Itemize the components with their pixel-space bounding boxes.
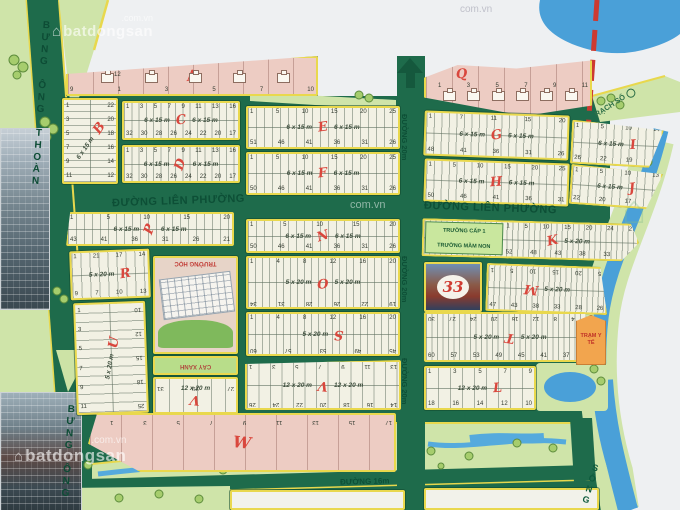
watermark-house-icon: ⌂ (622, 190, 646, 230)
block-D: 1357911131632302826242220176 x 15 mD6 x … (122, 145, 240, 183)
block-V: 1311975311416182022242612 x 20 mV12 x 20… (245, 360, 401, 410)
watermark-center: com.vn (350, 200, 385, 211)
road-label-16m: ĐƯỜNG 16m (340, 476, 390, 486)
watermark-top-center: com.vn (460, 5, 492, 15)
block-X2 (424, 488, 599, 510)
land-plot-map: 129135710A1357911Q13579112220181614126 x… (0, 0, 680, 510)
block-O: 1481216201922262831345 x 20 mO5 x 20 m (246, 256, 400, 309)
block-R: 12117149710135 x 20 mR (69, 249, 151, 301)
block-G: 1711152048413631266 x 15 mG6 x 15 m (423, 110, 569, 160)
block-L: 13579181614121012 x 20 mL (424, 366, 536, 410)
block-F: 15101520255046413631266 x 15 mF6 x 15 m (246, 152, 400, 195)
road-label-20m-mid: ĐƯỜNG 20m (400, 256, 409, 320)
block-C: 1357911131632302826242220176 x 15 mC6 x … (122, 101, 240, 140)
block-CX: CÂY XANH (153, 356, 238, 375)
block-YT: TRẠM Y TẾ (576, 315, 606, 365)
road-label-20m-bottom: ĐƯỜNG 20m (400, 358, 409, 422)
block-W: 1715131197531W (88, 413, 396, 472)
pond (544, 372, 596, 402)
road-label-20m-top: ĐƯỜNG 20m (400, 114, 409, 188)
block-X1 (230, 490, 405, 510)
block-U: 135791125181512105 x 20 mU (73, 301, 149, 415)
house-icon: ⌂ (14, 448, 23, 465)
block-V: 27293112 x 20 mV (153, 377, 238, 414)
north-arrow-icon (396, 58, 424, 92)
block-AD: 33 (424, 262, 482, 312)
block-T: 14812162024273060575349454137315 x 20 mT… (424, 312, 596, 362)
watermark-top-left: .com.vn ⌂batdongsan (52, 14, 153, 40)
block-SCH: TRƯỜNG HỌC (153, 256, 238, 354)
block-S: 14812162045495357605 x 20 mS (246, 312, 400, 356)
block-B: 13579112220181614126 x 15 mB (62, 98, 118, 184)
house-icon: ⌂ (52, 23, 61, 40)
block-H: 151015202550464136316 x 15 mH6 x 15 m (423, 158, 569, 206)
block-P: 151015204341363126216 x 15 mP6 x 15 m (66, 212, 234, 246)
block-N: 151015205046413631266 x 15 mN6 x 15 m (246, 219, 400, 253)
block-M: 25201510514743383328265 x 20 mM (485, 263, 609, 315)
block-K: 1510152024275248433833285 x 20 mKTRƯỜNG … (422, 218, 640, 262)
block-E: 15101520255146413631266 x 15 mE6 x 15 m (246, 106, 400, 149)
watermark-bottom-left: .com.vn ⌂batdongsan (14, 436, 126, 465)
